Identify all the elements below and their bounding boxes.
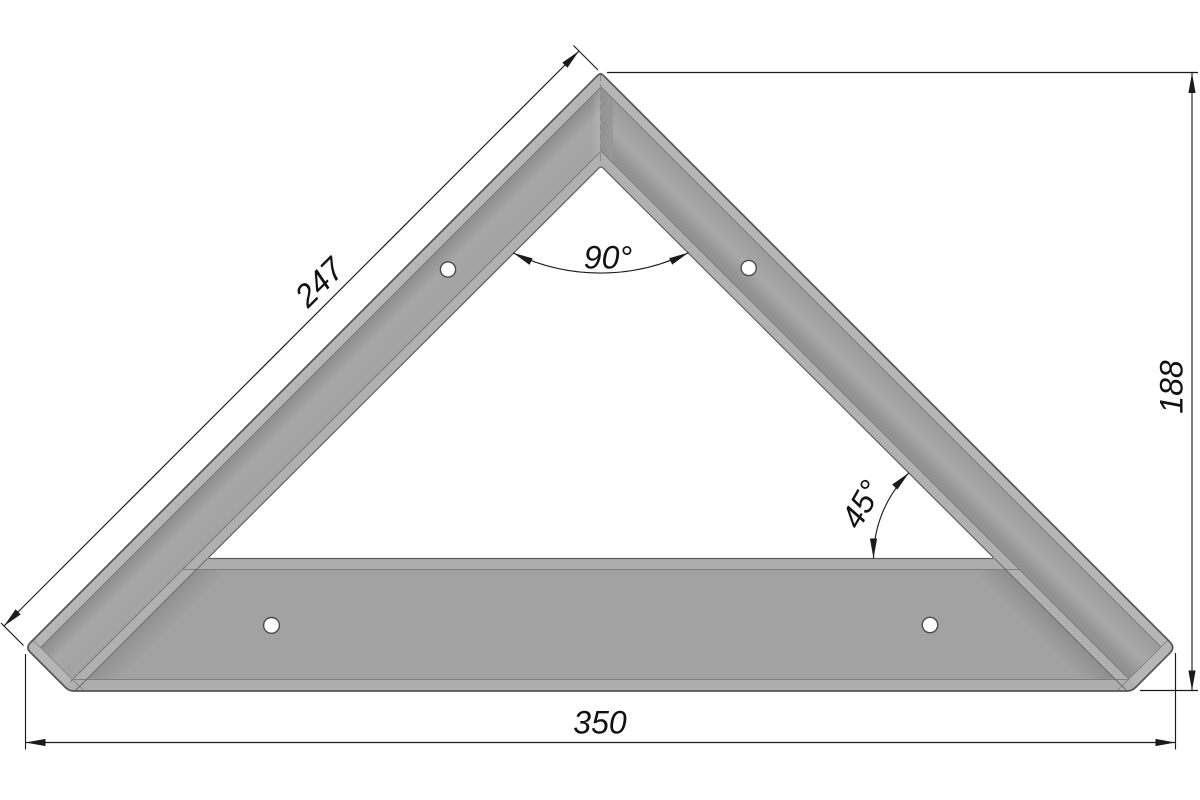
svg-text:247: 247 <box>287 250 352 315</box>
svg-text:90°: 90° <box>584 240 633 276</box>
svg-text:350: 350 <box>573 705 627 741</box>
svg-text:188: 188 <box>1154 360 1190 414</box>
